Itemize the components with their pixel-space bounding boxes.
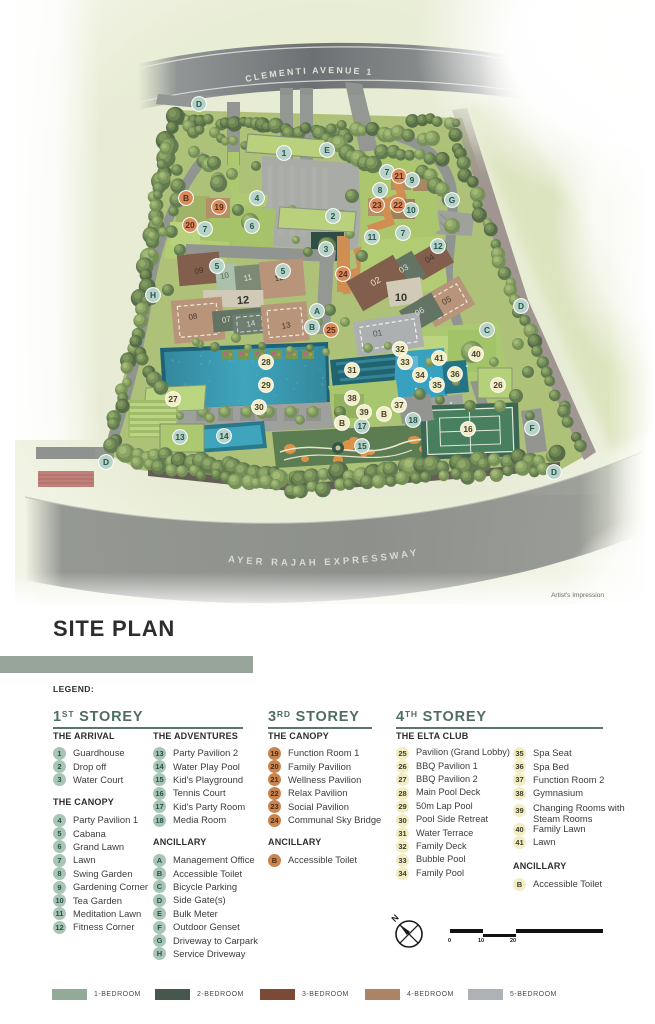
svg-text:20: 20: [185, 220, 195, 230]
svg-text:5: 5: [215, 261, 220, 271]
svg-text:B: B: [183, 193, 189, 203]
svg-text:N: N: [389, 912, 400, 923]
svg-text:9: 9: [410, 175, 415, 185]
svg-text:22: 22: [393, 200, 403, 210]
svg-text:C: C: [484, 325, 490, 335]
svg-text:G: G: [449, 195, 456, 205]
svg-text:7: 7: [401, 228, 406, 238]
svg-text:23: 23: [372, 200, 382, 210]
svg-text:B: B: [339, 418, 345, 428]
svg-text:D: D: [518, 301, 524, 311]
svg-text:D: D: [196, 99, 202, 109]
svg-text:24: 24: [338, 269, 348, 279]
svg-text:2: 2: [331, 211, 336, 221]
svg-text:B: B: [309, 322, 315, 332]
svg-text:32: 32: [395, 344, 405, 354]
svg-text:25: 25: [326, 325, 336, 335]
svg-text:6: 6: [250, 221, 255, 231]
svg-text:16: 16: [463, 424, 473, 434]
svg-text:17: 17: [357, 421, 367, 431]
svg-text:E: E: [324, 145, 330, 155]
svg-text:35: 35: [432, 380, 442, 390]
svg-text:38: 38: [347, 393, 357, 403]
svg-text:30: 30: [254, 402, 264, 412]
svg-text:41: 41: [434, 353, 444, 363]
svg-text:11: 11: [368, 232, 377, 242]
svg-text:34: 34: [415, 370, 425, 380]
svg-text:8: 8: [378, 185, 383, 195]
svg-text:19: 19: [214, 202, 224, 212]
svg-text:18: 18: [408, 415, 418, 425]
svg-text:29: 29: [261, 380, 271, 390]
svg-text:27: 27: [168, 394, 178, 404]
svg-text:10: 10: [406, 205, 416, 215]
svg-text:37: 37: [394, 400, 404, 410]
svg-text:21: 21: [394, 171, 404, 181]
svg-text:14: 14: [219, 431, 229, 441]
svg-text:28: 28: [261, 357, 271, 367]
svg-text:Artist's Impression: Artist's Impression: [551, 592, 604, 599]
svg-text:5: 5: [281, 266, 286, 276]
svg-text:12: 12: [433, 241, 443, 251]
svg-text:3: 3: [324, 244, 329, 254]
svg-text:15: 15: [357, 441, 367, 451]
svg-text:26: 26: [493, 380, 503, 390]
svg-text:D: D: [551, 467, 557, 477]
svg-text:39: 39: [359, 407, 369, 417]
svg-text:31: 31: [347, 365, 357, 375]
svg-text:40: 40: [471, 349, 481, 359]
svg-text:D: D: [103, 457, 109, 467]
svg-text:13: 13: [175, 432, 185, 442]
svg-text:1: 1: [282, 148, 287, 158]
svg-text:36: 36: [450, 369, 460, 379]
svg-text:7: 7: [385, 167, 390, 177]
svg-text:7: 7: [203, 224, 208, 234]
svg-text:B: B: [381, 409, 387, 419]
svg-text:A: A: [314, 306, 320, 316]
svg-text:H: H: [150, 290, 156, 300]
svg-text:4: 4: [255, 193, 260, 203]
svg-text:F: F: [529, 423, 534, 433]
svg-text:33: 33: [400, 357, 410, 367]
